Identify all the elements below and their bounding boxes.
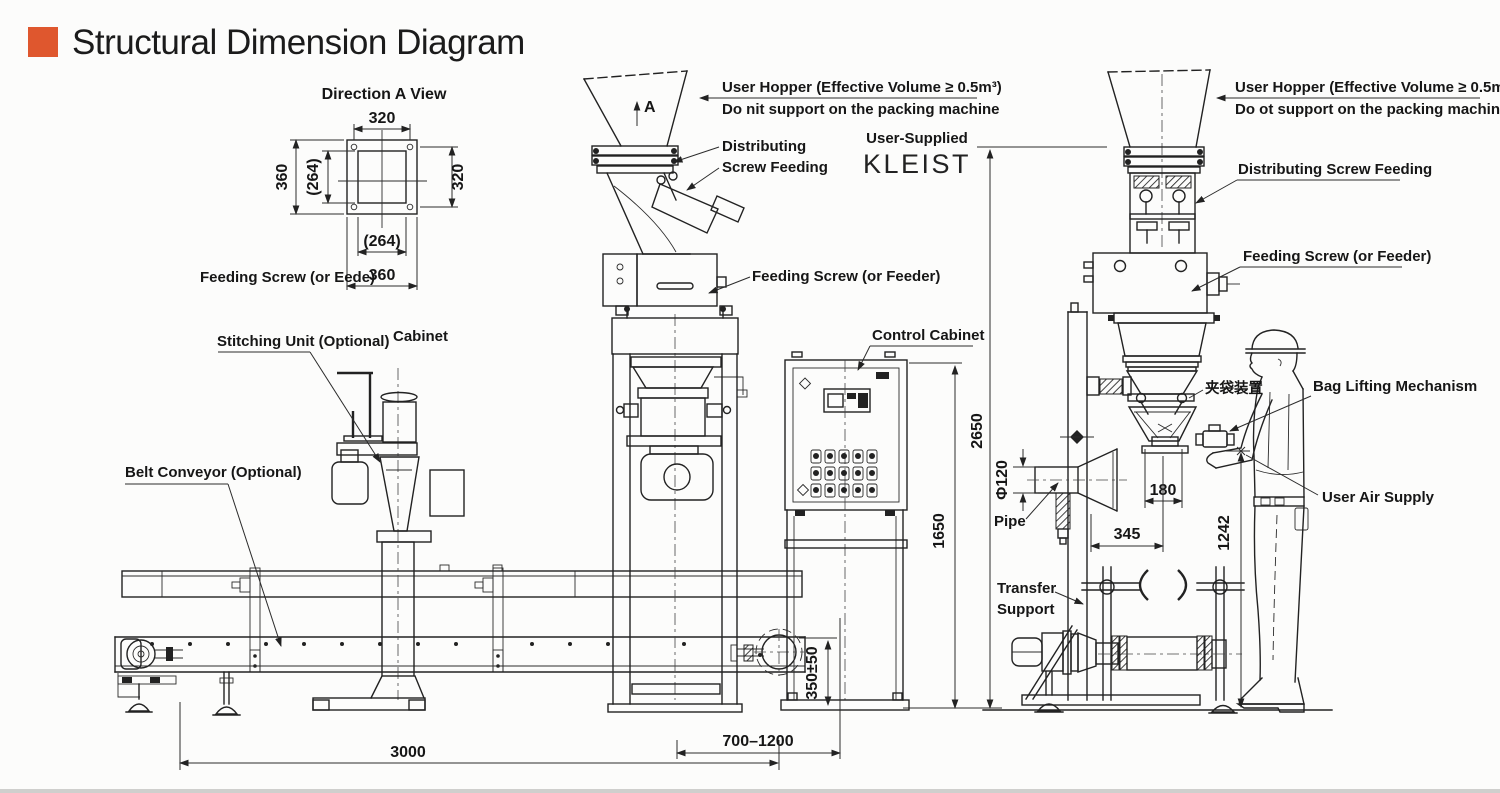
center-machine-labels: User Hopper (Effective Volume ≥ 0.5m³) D… [125,79,1002,646]
control-cabinet-label: Control Cabinet [872,327,985,344]
conveyor-post [232,568,260,672]
conveyor-post [475,568,503,672]
user-hopper-note-2-right: Do ot support on the packing machine [1235,101,1500,118]
distributing-label-2: Screw Feeding [722,159,828,176]
bag-lifting-label: Bag Lifting Mechanism [1313,378,1477,395]
conveyor-foot [213,672,240,715]
user-supplied-name: KLEIST [863,149,971,179]
cabinet-buttons [798,450,878,497]
control-cabinet-drawing [781,352,909,710]
user-hopper-note-1-right: User Hopper (Effective Volume ≥ 0.5m³) [1235,79,1500,96]
direction-a-view: Direction A View 320 360 (264) 320 (264)… [200,86,467,290]
page-title: Structural Dimension Diagram [72,23,525,62]
structural-dimension-diagram-page: Structural Dimension Diagram Direction A… [0,0,1500,793]
view-arrow-a: A [644,99,656,116]
belt-bolt-dots [150,642,762,657]
dim-264-left: (264) [305,158,322,195]
pipe-drawing [1027,449,1127,544]
distributing-label-1: Distributing [722,138,806,155]
title-accent-square [28,27,58,57]
dim-320-top: 320 [369,110,396,127]
pipe-label: Pipe [994,513,1026,530]
cabinet-label: Cabinet [393,328,448,345]
conveyor-foot [126,684,152,712]
stitching-unit-drawing [313,368,464,710]
dim-360-left: 360 [274,164,291,191]
direction-a-view-title: Direction A View [322,86,447,103]
feeding-screw-label-right: Feeding Screw (or Feeder) [1243,248,1431,265]
page-header: Structural Dimension Diagram [28,23,525,62]
distributing-screw-label-right: Distributing Screw Feeding [1238,161,1432,178]
conveyor-end-pulley [731,629,804,676]
dim-320-right: 320 [450,164,467,191]
transfer-support-label-2: Support [997,601,1055,618]
user-air-supply-label: User Air Supply [1322,489,1435,506]
dim-pipe-offset: 345 [1114,526,1141,543]
dim-264-bottom: (264) [363,233,400,250]
user-hopper-note-2: Do nit support on the packing machine [722,101,1000,118]
feeding-screw-label-center: Feeding Screw (or Feeder) [752,268,940,285]
belt-conveyor-label: Belt Conveyor (Optional) [125,464,302,481]
conveyor-motor [118,639,183,697]
stitching-unit-label: Stitching Unit (Optional) [217,333,389,350]
user-hopper-note-1: User Hopper (Effective Volume ≥ 0.5m³) [722,79,1002,96]
dim-cabinet-height: 1650 [931,513,948,549]
bottom-edge-strip [0,789,1500,793]
feeding-screw-caption: Feeding Screw (or Eede) [200,269,375,286]
dim-position-range: 700–1200 [722,733,793,750]
dim-operating-height: 1242 [1216,515,1233,551]
belt-conveyor-drawing [115,565,805,715]
transfer-support-label-1: Transfer [997,580,1056,597]
dim-pipe-diameter: Φ120 [994,460,1011,500]
dim-conveyor-length: 3000 [390,744,426,761]
dim-discharge-height: 350±50 [804,646,821,699]
dim-overall-height: 2650 [969,413,986,449]
user-supplied-label: User-Supplied [866,130,968,147]
air-supply-device [1196,425,1234,447]
cabinet-display-panel [824,389,870,412]
bag-clamp-label-cn: 夹袋装置 [1205,379,1263,397]
